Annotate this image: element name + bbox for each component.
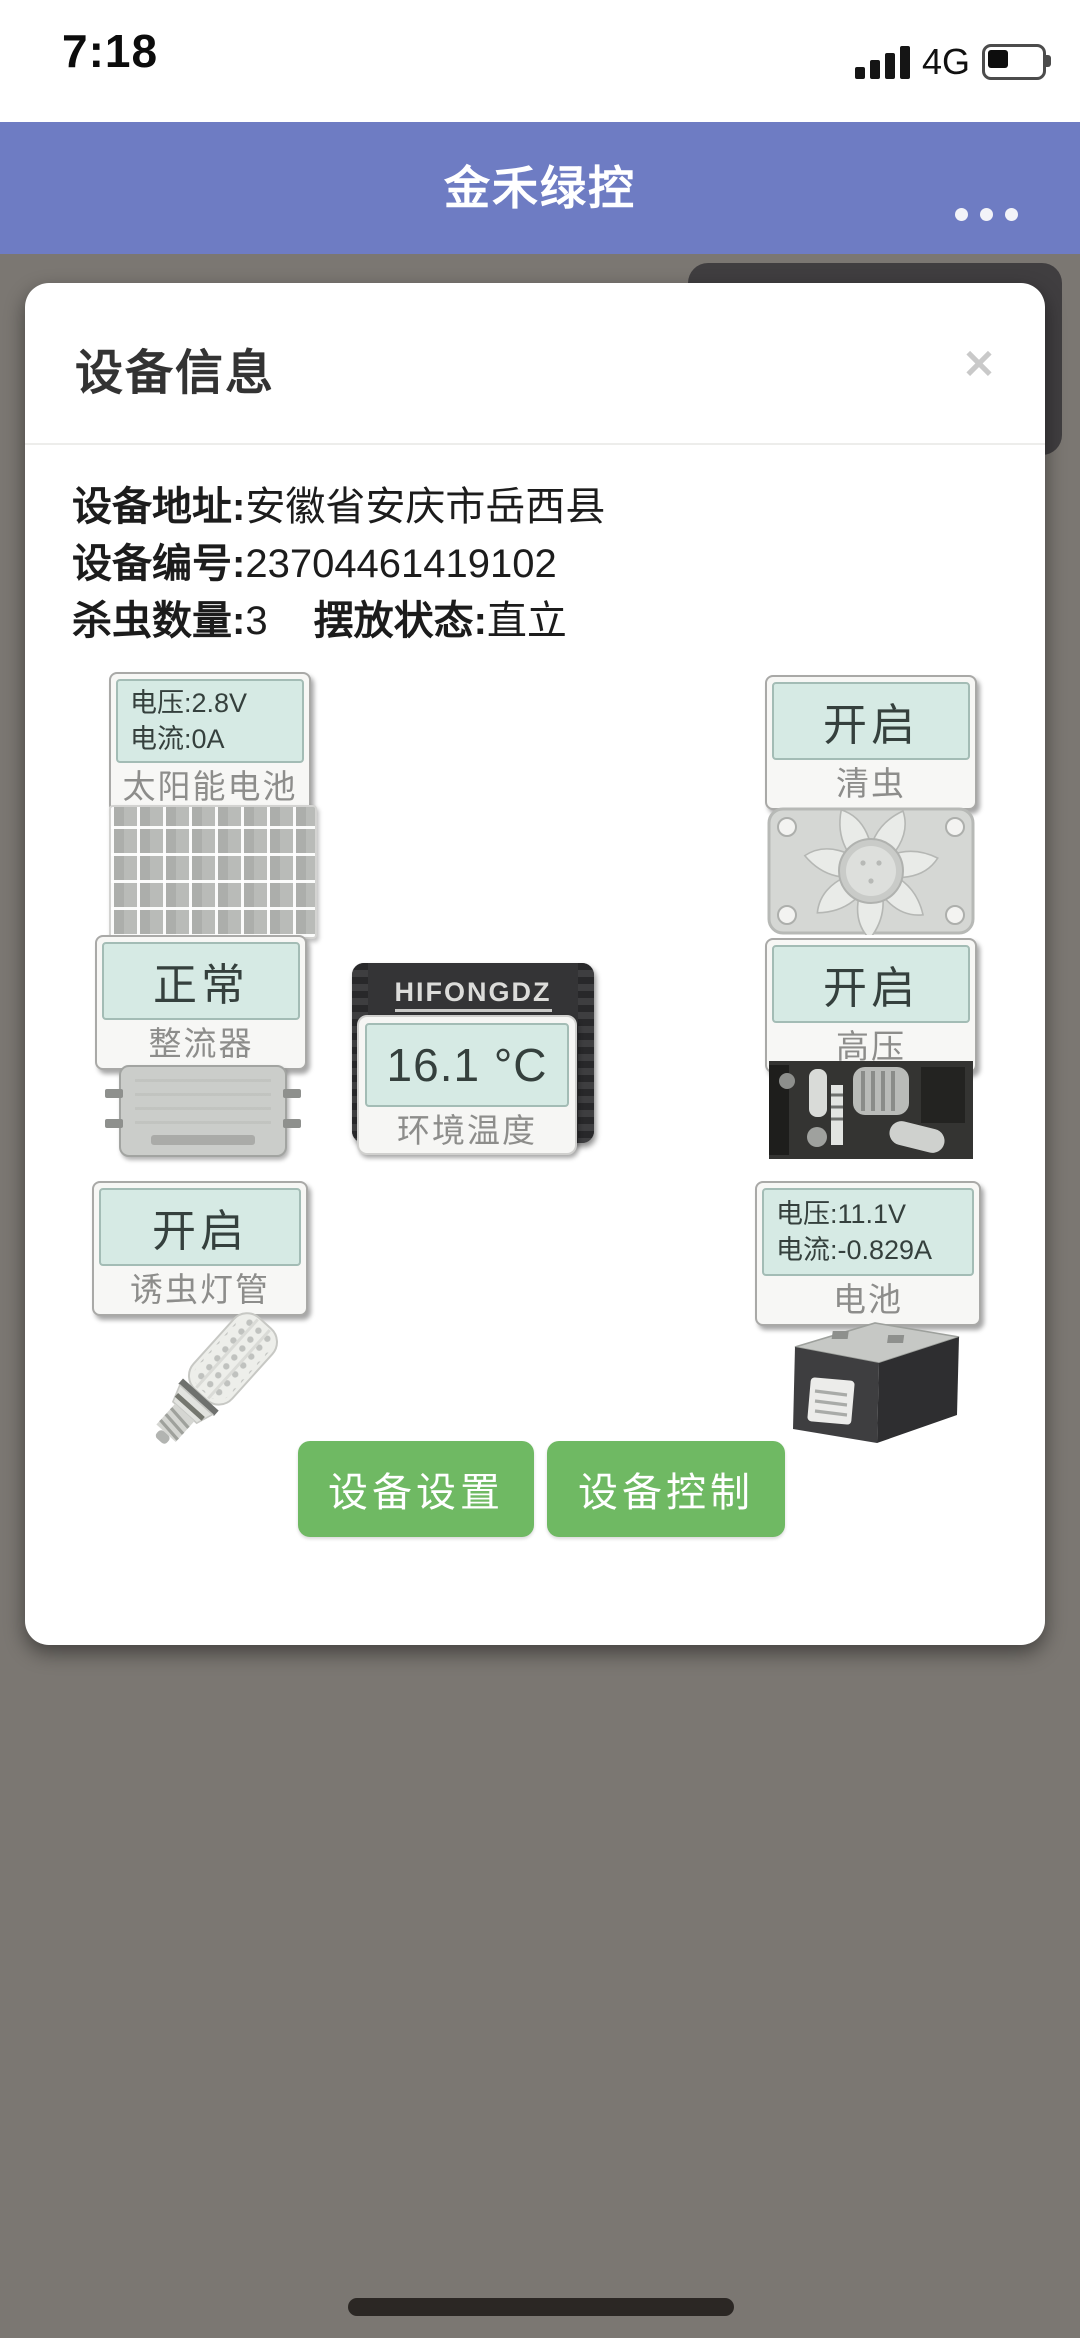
status-bar-right: 4G — [855, 40, 1046, 84]
controller-brand: HIFONGDZ — [352, 977, 594, 1008]
rectifier-card: 正常 整流器 — [95, 935, 307, 1070]
temperature-card: 16.1 °C 环境温度 — [357, 1015, 577, 1155]
placement-value: 直立 — [487, 599, 567, 643]
device-stats-line: 杀虫数量:3摆放状态:直立 — [72, 593, 605, 650]
address-label: 设备地址: — [72, 485, 245, 529]
address-value: 安徽省安庆市岳西县 — [245, 485, 605, 529]
temperature-value: 16.1 °C — [365, 1023, 569, 1107]
device-id-label: 设备编号: — [72, 542, 245, 586]
clock: 7:18 — [62, 24, 158, 78]
cellular-signal-icon — [855, 45, 910, 79]
insect-count-label: 杀虫数量: — [72, 599, 245, 643]
battery-image — [775, 1315, 971, 1449]
high-voltage-image — [769, 1061, 973, 1159]
lure-lamp-image — [65, 1297, 295, 1469]
device-id-line: 设备编号:23704461419102 — [72, 536, 605, 593]
fan-image — [767, 807, 975, 935]
insect-cleaner-status: 开启 — [772, 682, 970, 760]
solar-panel-card: 电压:2.8V 电流:0A 太阳能电池 — [109, 672, 311, 813]
app-header: 金禾绿控 — [0, 122, 1080, 254]
insect-cleaner-card: 开启 清虫 — [765, 675, 977, 810]
modal-title: 设备信息 — [75, 333, 275, 403]
placement-label: 摆放状态: — [314, 599, 487, 643]
device-settings-button[interactable]: 设备设置 — [298, 1441, 534, 1537]
home-indicator[interactable] — [348, 2298, 734, 2316]
solar-current: 电流:0A — [130, 721, 225, 757]
app-title: 金禾绿控 — [0, 122, 1080, 254]
more-menu-icon[interactable] — [955, 208, 1018, 221]
solar-panel-label: 太阳能电池 — [116, 763, 304, 811]
device-control-button[interactable]: 设备控制 — [547, 1441, 785, 1537]
device-address-line: 设备地址:安徽省安庆市岳西县 — [72, 479, 605, 536]
status-bar: 7:18 4G — [0, 0, 1080, 122]
solar-panel-image — [109, 805, 317, 939]
device-id-value: 23704461419102 — [245, 542, 556, 586]
app-screen: 7:18 4G 金禾绿控 设备信息 ✕ 设备地址:安徽省安庆市岳西县 设备编号:… — [0, 0, 1080, 2338]
close-icon[interactable]: ✕ — [949, 335, 1009, 395]
battery-readout: 电压:11.1V 电流:-0.829A — [762, 1188, 974, 1276]
battery-voltage: 电压:11.1V — [776, 1196, 906, 1232]
solar-voltage: 电压:2.8V — [130, 685, 247, 721]
lure-lamp-card: 开启 诱虫灯管 — [92, 1181, 308, 1316]
lure-lamp-status: 开启 — [99, 1188, 301, 1266]
insect-count-value: 3 — [245, 599, 267, 643]
rectifier-image — [119, 1065, 287, 1157]
rectifier-label: 整流器 — [102, 1020, 300, 1068]
high-voltage-card: 开启 高压 — [765, 938, 977, 1073]
device-info-modal: 设备信息 ✕ 设备地址:安徽省安庆市岳西县 设备编号:2370446141910… — [25, 283, 1045, 1645]
divider — [25, 443, 1045, 445]
network-type-label: 4G — [922, 41, 970, 83]
insect-cleaner-label: 清虫 — [772, 760, 970, 808]
battery-card: 电压:11.1V 电流:-0.829A 电池 — [755, 1181, 981, 1326]
high-voltage-status: 开启 — [772, 945, 970, 1023]
solar-panel-readout: 电压:2.8V 电流:0A — [116, 679, 304, 763]
device-info-text: 设备地址:安徽省安庆市岳西县 设备编号:23704461419102 杀虫数量:… — [72, 479, 605, 650]
battery-current: 电流:-0.829A — [776, 1232, 932, 1268]
temperature-label: 环境温度 — [365, 1107, 569, 1155]
rectifier-status: 正常 — [102, 942, 300, 1020]
battery-icon — [982, 44, 1046, 80]
